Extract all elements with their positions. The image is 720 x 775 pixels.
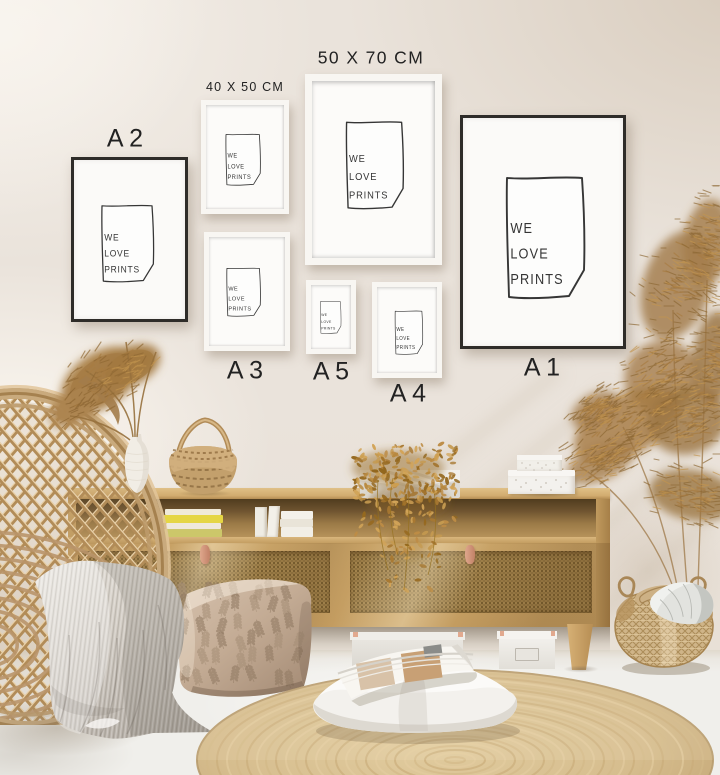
svg-text:WE: WE	[349, 153, 366, 165]
svg-text:WE: WE	[228, 286, 238, 292]
svg-text:LOVE: LOVE	[349, 172, 377, 184]
svg-text:WE: WE	[104, 232, 119, 242]
svg-text:WE: WE	[396, 327, 404, 333]
svg-text:WE: WE	[321, 313, 327, 317]
svg-text:LOVE: LOVE	[321, 320, 331, 324]
svg-text:PRINTS: PRINTS	[396, 345, 415, 351]
svg-text:PRINTS: PRINTS	[104, 264, 140, 274]
svg-text:PRINTS: PRINTS	[228, 306, 251, 312]
svg-text:LOVE: LOVE	[227, 164, 244, 170]
svg-text:LOVE: LOVE	[104, 248, 130, 258]
svg-text:WE: WE	[510, 220, 533, 236]
svg-text:PRINTS: PRINTS	[321, 327, 335, 331]
svg-text:PRINTS: PRINTS	[227, 175, 251, 181]
svg-text:LOVE: LOVE	[396, 336, 410, 342]
svg-text:LOVE: LOVE	[228, 296, 245, 302]
svg-text:WE: WE	[227, 154, 237, 160]
svg-text:PRINTS: PRINTS	[349, 190, 388, 202]
